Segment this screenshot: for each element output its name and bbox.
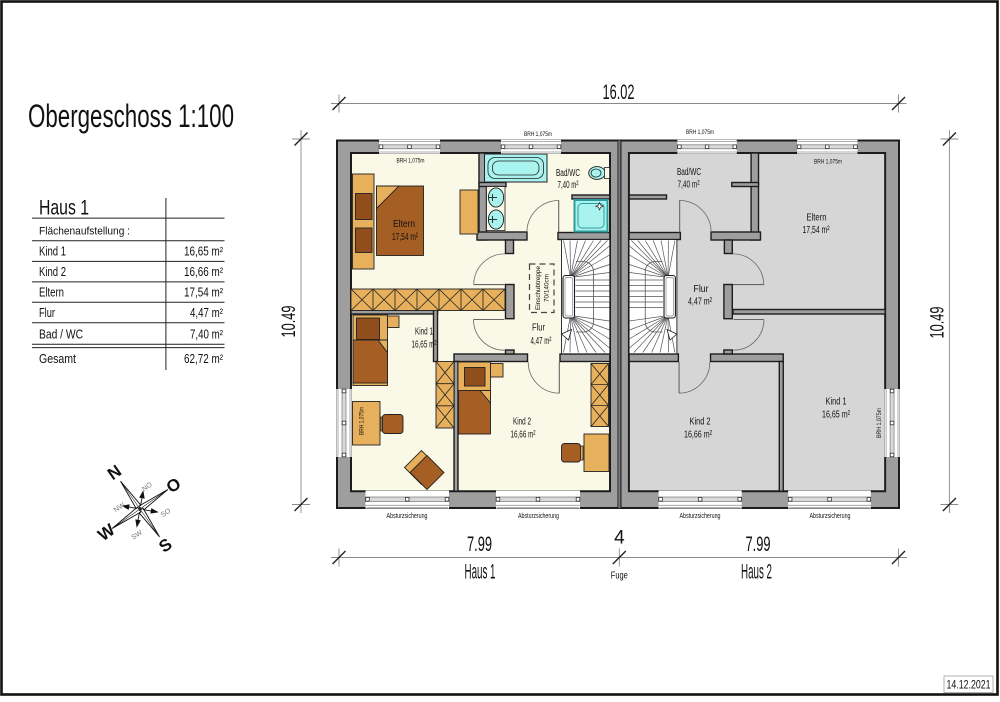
svg-text:Absturzsicherung: Absturzsicherung [518, 513, 559, 520]
svg-text:7,40 m²: 7,40 m² [190, 327, 223, 342]
svg-text:62,72 m²: 62,72 m² [184, 351, 223, 366]
svg-text:Kind 1: Kind 1 [826, 397, 847, 408]
svg-text:BRH 1,075m: BRH 1,075m [359, 407, 366, 435]
svg-text:16.02: 16.02 [603, 81, 635, 104]
svg-text:Haus 1: Haus 1 [39, 197, 89, 220]
svg-text:7.99: 7.99 [467, 533, 492, 556]
svg-text:16,65 m²: 16,65 m² [412, 340, 437, 351]
svg-text:16,65 m²: 16,65 m² [184, 243, 223, 258]
svg-text:BRH 1,075m: BRH 1,075m [814, 159, 842, 166]
svg-text:4,47 m²: 4,47 m² [688, 297, 712, 308]
svg-text:Eltern: Eltern [393, 219, 415, 230]
svg-text:10.49: 10.49 [928, 307, 949, 339]
svg-text:Bad/WC: Bad/WC [677, 167, 701, 178]
svg-text:7,40 m²: 7,40 m² [558, 180, 579, 191]
svg-text:Bad / WC: Bad / WC [39, 327, 83, 342]
svg-text:Kind 1: Kind 1 [415, 327, 433, 338]
svg-text:Kind 1: Kind 1 [39, 243, 66, 258]
svg-text:4: 4 [614, 528, 625, 549]
svg-text:Kind 2: Kind 2 [39, 264, 66, 279]
svg-text:7.99: 7.99 [746, 533, 771, 556]
svg-text:Bad/WC: Bad/WC [556, 168, 580, 179]
svg-text:BRH 1,075m: BRH 1,075m [876, 408, 883, 438]
svg-text:Gesamt: Gesamt [39, 351, 76, 366]
svg-text:16,66 m²: 16,66 m² [684, 430, 712, 441]
svg-text:Flur: Flur [39, 305, 55, 320]
svg-text:16,66 m²: 16,66 m² [511, 430, 536, 441]
svg-text:Absturzsicherung: Absturzsicherung [810, 513, 851, 520]
svg-text:70/140cm: 70/140cm [545, 274, 551, 302]
svg-text:4,47 m²: 4,47 m² [190, 305, 223, 320]
svg-text:Einschubtreppe: Einschubtreppe [536, 265, 542, 310]
svg-text:16,65 m²: 16,65 m² [822, 410, 850, 421]
svg-text:Obergeschoss 1:100: Obergeschoss 1:100 [28, 98, 234, 134]
svg-text:7,40 m²: 7,40 m² [678, 180, 700, 191]
svg-text:Absturzsicherung: Absturzsicherung [387, 513, 428, 520]
svg-text:Flächenaufstellung :: Flächenaufstellung : [39, 226, 130, 238]
svg-text:Kind 2: Kind 2 [690, 417, 711, 428]
svg-text:Eltern: Eltern [39, 284, 64, 299]
svg-text:Haus 1: Haus 1 [465, 561, 496, 584]
svg-text:Flur: Flur [694, 284, 710, 295]
svg-text:17,54 m²: 17,54 m² [803, 225, 830, 236]
svg-text:Eltern: Eltern [807, 213, 827, 224]
svg-text:4,47 m²: 4,47 m² [531, 336, 552, 347]
svg-text:17,54 m²: 17,54 m² [392, 232, 418, 243]
svg-text:BRH 1,075m: BRH 1,075m [686, 129, 714, 136]
svg-text:Kind 2: Kind 2 [513, 417, 531, 428]
svg-text:BRH 1,075m: BRH 1,075m [524, 131, 552, 138]
svg-text:Fuge: Fuge [611, 570, 628, 582]
svg-text:10.49: 10.49 [279, 306, 300, 338]
svg-text:14.12.2021: 14.12.2021 [947, 680, 991, 692]
svg-text:Haus 2: Haus 2 [741, 561, 772, 584]
svg-text:Flur: Flur [532, 323, 545, 334]
svg-text:BRH 1,075m: BRH 1,075m [397, 158, 425, 165]
svg-text:Absturzsicherung: Absturzsicherung [680, 513, 721, 520]
svg-text:17,54 m²: 17,54 m² [184, 284, 223, 299]
svg-text:16,66 m²: 16,66 m² [184, 264, 223, 279]
